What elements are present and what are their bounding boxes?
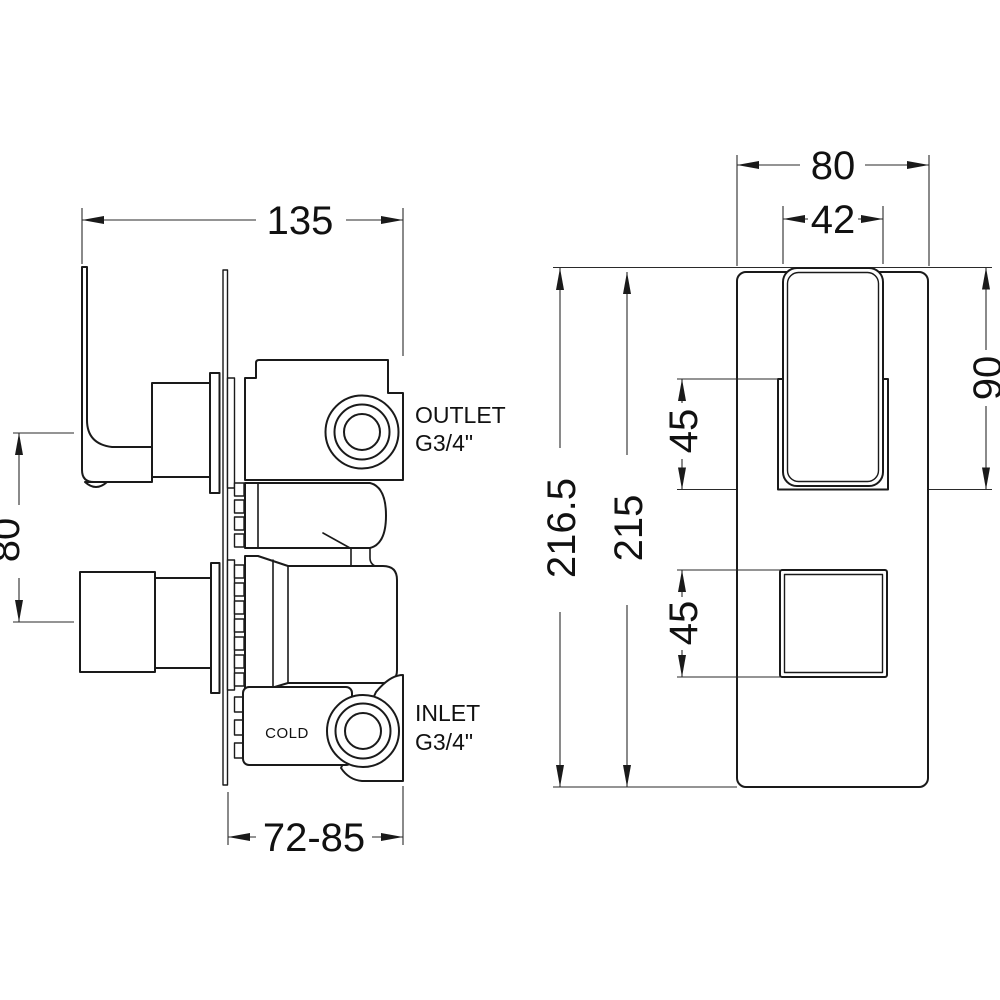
arrowhead-down <box>678 468 686 490</box>
arrowhead-up <box>678 570 686 592</box>
side-view: 135 <box>0 199 506 860</box>
front-view: 80 42 216.5 215 <box>540 144 1000 787</box>
dim-width-135: 135 <box>82 199 403 356</box>
arrowhead-left <box>82 216 104 224</box>
knob-stem <box>155 578 211 668</box>
arrowhead-right <box>907 161 929 169</box>
arrowhead-down <box>15 600 23 622</box>
handle-flange <box>210 373 220 493</box>
dim-label-216-5: 216.5 <box>540 478 584 578</box>
dim-depth-72-85: 72-85 <box>228 786 403 860</box>
dim-label-80-side: 80 <box>0 518 28 563</box>
technical-drawing-page: 135 <box>0 0 1000 1000</box>
handle-stem <box>152 383 210 477</box>
arrowhead-down <box>982 468 990 490</box>
dim-label-45-upper: 45 <box>662 409 706 454</box>
dim-centres-80: 80 <box>0 433 74 622</box>
dim-lower-square-45: 45 <box>662 570 706 677</box>
shower-valve-drawing: 135 <box>0 0 1000 1000</box>
inlet-port <box>327 695 399 767</box>
arrowhead-up <box>556 268 564 290</box>
square-knob-front-inner <box>785 575 883 673</box>
arrowhead-left <box>737 161 759 169</box>
handle-screw-dome <box>85 482 107 487</box>
outlet-label: OUTLET <box>415 402 506 428</box>
knob-body <box>80 572 155 672</box>
pipe-connection-lines <box>351 548 378 567</box>
knob-flange <box>211 563 220 693</box>
dim-label-80-front: 80 <box>811 144 856 188</box>
arrowhead-left <box>228 833 250 841</box>
inlet-thread-label: G3/4" <box>415 729 473 755</box>
outlet-thread-label: G3/4" <box>415 430 473 456</box>
inlet-label: INLET <box>415 700 480 726</box>
arrowhead-right <box>381 216 403 224</box>
thermostatic-cartridge <box>245 556 397 692</box>
dim-label-135: 135 <box>267 199 334 243</box>
dim-label-42: 42 <box>811 198 856 242</box>
valve-body-mid-band <box>245 483 386 548</box>
arrowhead-down <box>556 765 564 787</box>
thread-teeth-middle <box>235 565 245 686</box>
dim-plate-height-215: 215 <box>607 272 651 787</box>
handle-blade <box>82 267 152 482</box>
arrowhead-up <box>678 379 686 401</box>
arrowhead-left <box>783 215 805 223</box>
outlet-port <box>326 396 399 469</box>
dim-label-72-85: 72-85 <box>263 816 365 860</box>
dim-handle-width-42: 42 <box>783 198 883 264</box>
upper-escutcheon-ring <box>228 378 235 488</box>
dim-total-height-216-5: 216.5 <box>540 268 584 787</box>
lever-handle-front-inner <box>788 273 879 482</box>
cold-label: COLD <box>265 725 309 742</box>
arrowhead-right <box>381 833 403 841</box>
arrowhead-up <box>623 272 631 294</box>
arrowhead-up <box>15 433 23 455</box>
lower-escutcheon-ring <box>228 560 235 690</box>
dim-label-45-lower: 45 <box>662 601 706 646</box>
dim-label-215: 215 <box>607 495 651 562</box>
arrowhead-right <box>861 215 883 223</box>
arrowhead-down <box>678 655 686 677</box>
knob-side <box>80 563 220 693</box>
arrowhead-up <box>982 268 990 290</box>
dim-handle-height-90: 90 <box>966 268 1000 490</box>
wall-plate-side <box>223 270 228 785</box>
lever-handle-side <box>82 267 220 493</box>
dim-label-90: 90 <box>966 356 1000 401</box>
arrowhead-down <box>623 765 631 787</box>
thread-teeth-inlet <box>235 697 244 758</box>
thread-teeth-upper <box>235 483 245 547</box>
